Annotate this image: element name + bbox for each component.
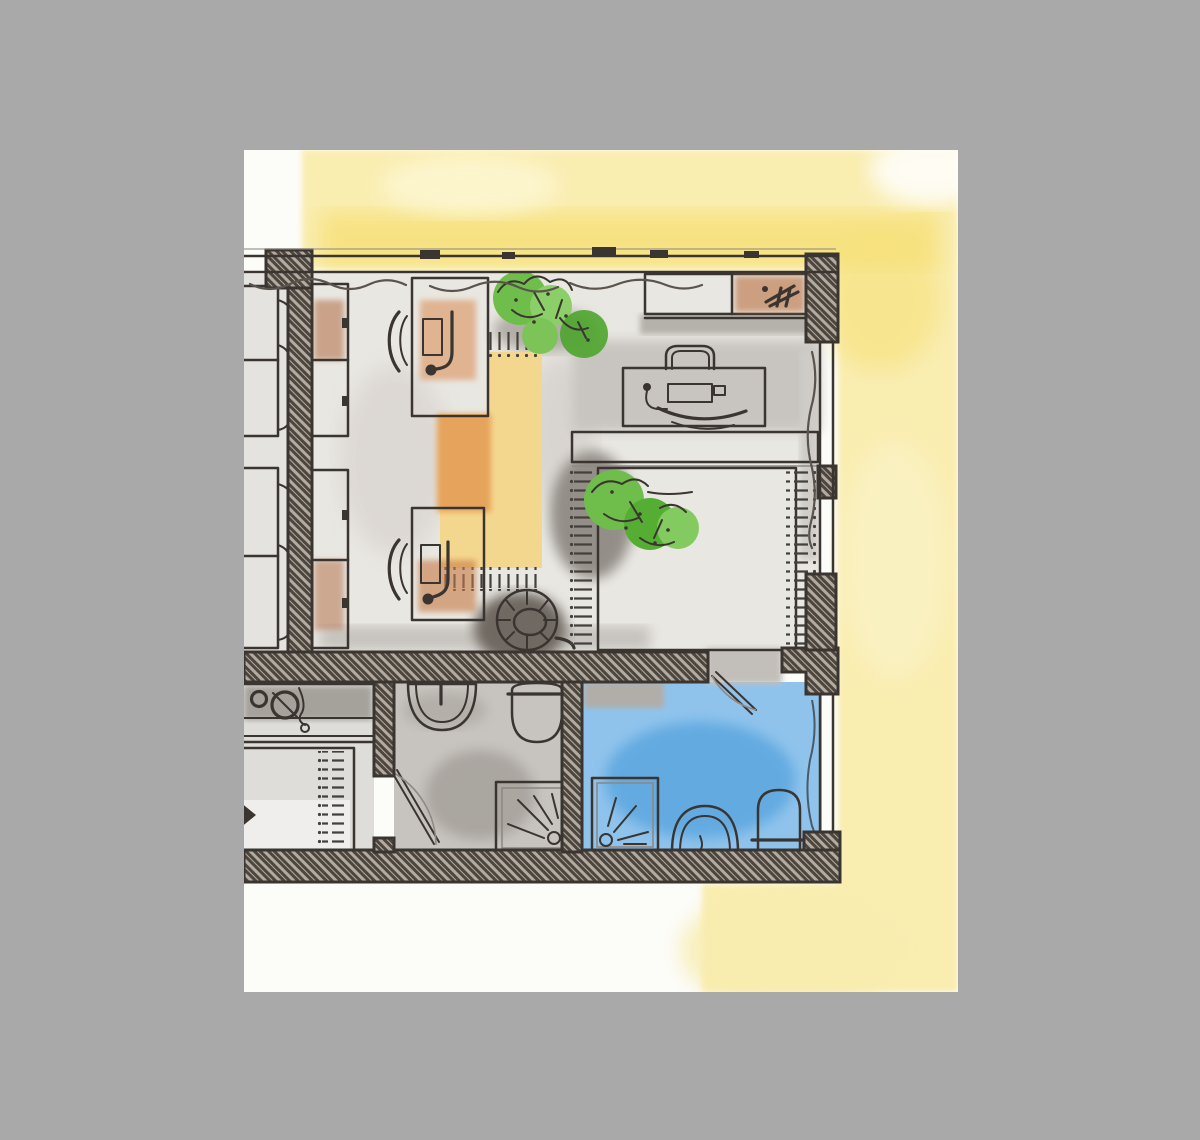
wall-right-mid (806, 574, 836, 650)
wall-right-pillar (806, 254, 838, 342)
neighbor-room-floor (244, 274, 288, 654)
wall-wc-bath (562, 682, 582, 852)
wall-corridor (244, 652, 708, 682)
wall-left (288, 288, 312, 652)
screenshot-stage (0, 0, 1200, 1140)
floor-plan-drawing (0, 0, 1200, 1140)
wall-kitchen-wc (374, 682, 394, 776)
wall-bottom (244, 850, 840, 882)
wall-door-stub (374, 838, 394, 852)
fringe (322, 751, 344, 852)
